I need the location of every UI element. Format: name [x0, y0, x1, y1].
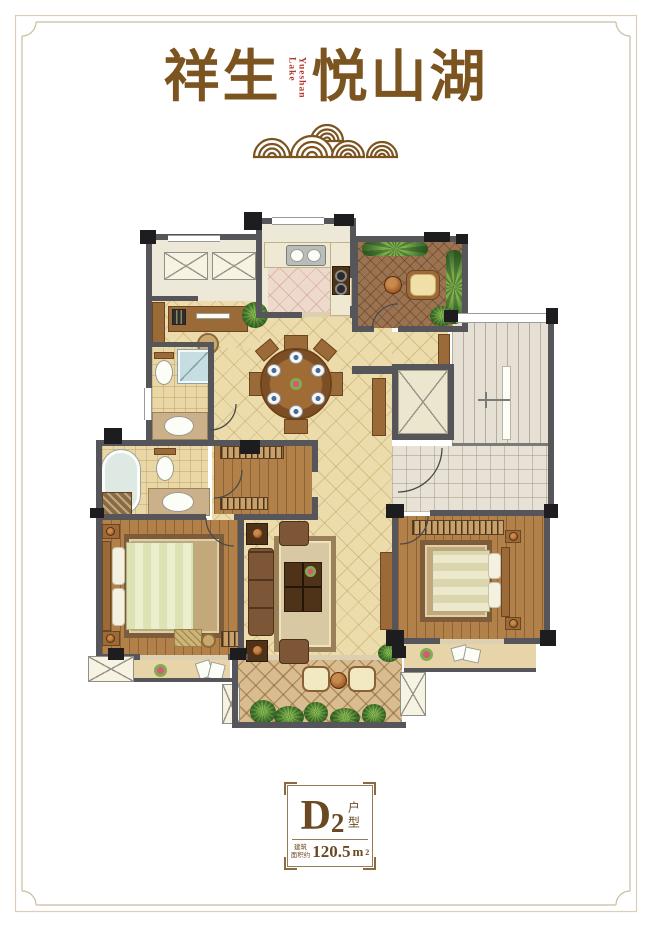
bed-headboard [501, 547, 510, 617]
wall [238, 514, 244, 660]
wall [208, 344, 214, 446]
wall [430, 510, 554, 516]
elevator-floor [398, 370, 448, 434]
stair-mark [478, 399, 510, 401]
lamp [106, 634, 115, 643]
desk-paper [196, 313, 230, 319]
flower-pot [420, 648, 433, 661]
place-setting [311, 364, 325, 377]
place-setting [289, 351, 303, 364]
area-value: 120.5 [312, 842, 350, 862]
frame-corner-ornament [363, 857, 376, 870]
lamp [509, 532, 518, 541]
column [444, 310, 458, 322]
armchair [279, 521, 309, 546]
storage-window [168, 235, 220, 242]
pillow [488, 553, 501, 579]
unit-code: D 2 户型 [288, 786, 372, 837]
stair-rail [502, 366, 511, 440]
kitchen-window [272, 217, 324, 225]
wall [312, 497, 318, 520]
bay-window [400, 672, 426, 716]
wash-basin [162, 492, 194, 512]
wall [352, 326, 374, 332]
poster-page: 祥生 Yueshan Lake 悦山湖 [0, 0, 652, 927]
foyer-floor [392, 446, 548, 512]
desk-books [172, 309, 186, 325]
flower-vase [305, 566, 316, 577]
brand-title-left: 祥生 [164, 50, 282, 107]
unit-type-label: 户型 [347, 801, 359, 831]
unit-badge: D 2 户型 建筑面积约 120.5 m 2 [287, 785, 373, 867]
wall [392, 434, 454, 440]
column [240, 440, 260, 454]
column [104, 428, 122, 444]
toilet-bowl [156, 456, 174, 481]
wall [232, 654, 238, 726]
wall [548, 314, 554, 516]
coffee-table [284, 562, 322, 612]
lamp [252, 645, 263, 656]
dining-chair [284, 419, 308, 434]
shoe-cabinet [152, 302, 165, 346]
stairwell-window [456, 313, 548, 323]
wall [398, 326, 468, 332]
column [386, 504, 404, 518]
toilet-bowl [155, 360, 173, 385]
entry-threshold [438, 334, 450, 366]
frame-corner-ornament [284, 782, 297, 795]
centerpiece [290, 378, 302, 390]
place-setting [267, 392, 281, 405]
hall-cabinet [372, 378, 386, 436]
column [544, 504, 558, 518]
balcony-table [330, 672, 347, 689]
place-setting [311, 392, 325, 405]
column [108, 648, 124, 660]
column [456, 234, 468, 244]
wall [312, 440, 318, 472]
closet-rail [220, 497, 268, 510]
place-setting [289, 405, 303, 418]
storage-cabinet [164, 252, 208, 280]
lamp [252, 528, 263, 539]
column [244, 212, 262, 230]
wash-basin [164, 416, 194, 436]
bed-headboard [102, 541, 111, 631]
balcony-seat [302, 666, 330, 692]
straw-mat [174, 629, 202, 647]
flower-pot [154, 664, 167, 677]
sofa [248, 548, 274, 636]
sink-basin [307, 249, 321, 262]
column [334, 214, 354, 226]
wall [256, 218, 262, 318]
master-window-line [140, 655, 228, 660]
column [230, 648, 246, 660]
column [386, 630, 404, 646]
bed [126, 542, 194, 630]
wall [96, 514, 102, 660]
wall [214, 440, 316, 446]
lamp [106, 527, 115, 536]
brand-subtitle-vertical: Yueshan Lake [287, 57, 307, 117]
area-unit: m [352, 844, 363, 860]
burner [335, 270, 347, 282]
toilet-tank [154, 448, 176, 455]
plant [250, 700, 276, 724]
wall [96, 514, 206, 520]
stairs-floor [452, 320, 548, 443]
bed [432, 550, 490, 612]
wall [392, 364, 398, 440]
wall [234, 514, 318, 520]
stool [201, 633, 216, 648]
plants [362, 242, 428, 256]
wall [352, 236, 358, 332]
column [140, 230, 156, 244]
wall [134, 678, 232, 682]
wall [392, 364, 454, 370]
wardrobe [412, 520, 504, 535]
column [424, 232, 450, 242]
frame-corner-ornament [363, 782, 376, 795]
wall [146, 342, 214, 347]
storage-cabinet [212, 252, 256, 280]
unit-letter: D [301, 797, 331, 837]
column [540, 630, 556, 646]
bath-mat [102, 492, 132, 516]
bathroom-window [144, 388, 152, 420]
brand-header: 祥生 Yueshan Lake 悦山湖 [0, 50, 652, 117]
wall [352, 236, 468, 242]
magazines [463, 646, 482, 663]
wall [146, 296, 198, 301]
balcony-threshold [248, 655, 392, 660]
armchair [279, 639, 309, 664]
wall [352, 366, 394, 374]
area-unit-exponent: 2 [365, 848, 369, 857]
pillow [488, 582, 501, 608]
wall [256, 312, 302, 318]
shower [178, 350, 210, 383]
plant [304, 702, 328, 724]
brand-title-right: 悦山湖 [312, 50, 489, 107]
wall [448, 364, 454, 440]
column [392, 646, 406, 658]
bedroom-2-window-line [440, 639, 504, 644]
frame-corner-ornament [284, 857, 297, 870]
column [90, 508, 104, 518]
unit-number: 2 [331, 809, 345, 837]
sink-basin [290, 249, 304, 262]
foyer-divider [452, 443, 548, 446]
wall [232, 722, 406, 728]
burner [335, 283, 347, 295]
balcony-seat [348, 666, 376, 692]
place-setting [267, 364, 281, 377]
column [546, 308, 558, 324]
pillow [112, 547, 125, 585]
pillow [112, 588, 125, 626]
wall [392, 510, 398, 644]
tea-table-top [410, 274, 436, 296]
unit-area: 建筑面积约 120.5 m 2 [288, 840, 372, 864]
toilet-tank [154, 352, 174, 359]
floor-cushion [384, 276, 402, 294]
lamp [509, 619, 518, 628]
wall [544, 510, 550, 644]
